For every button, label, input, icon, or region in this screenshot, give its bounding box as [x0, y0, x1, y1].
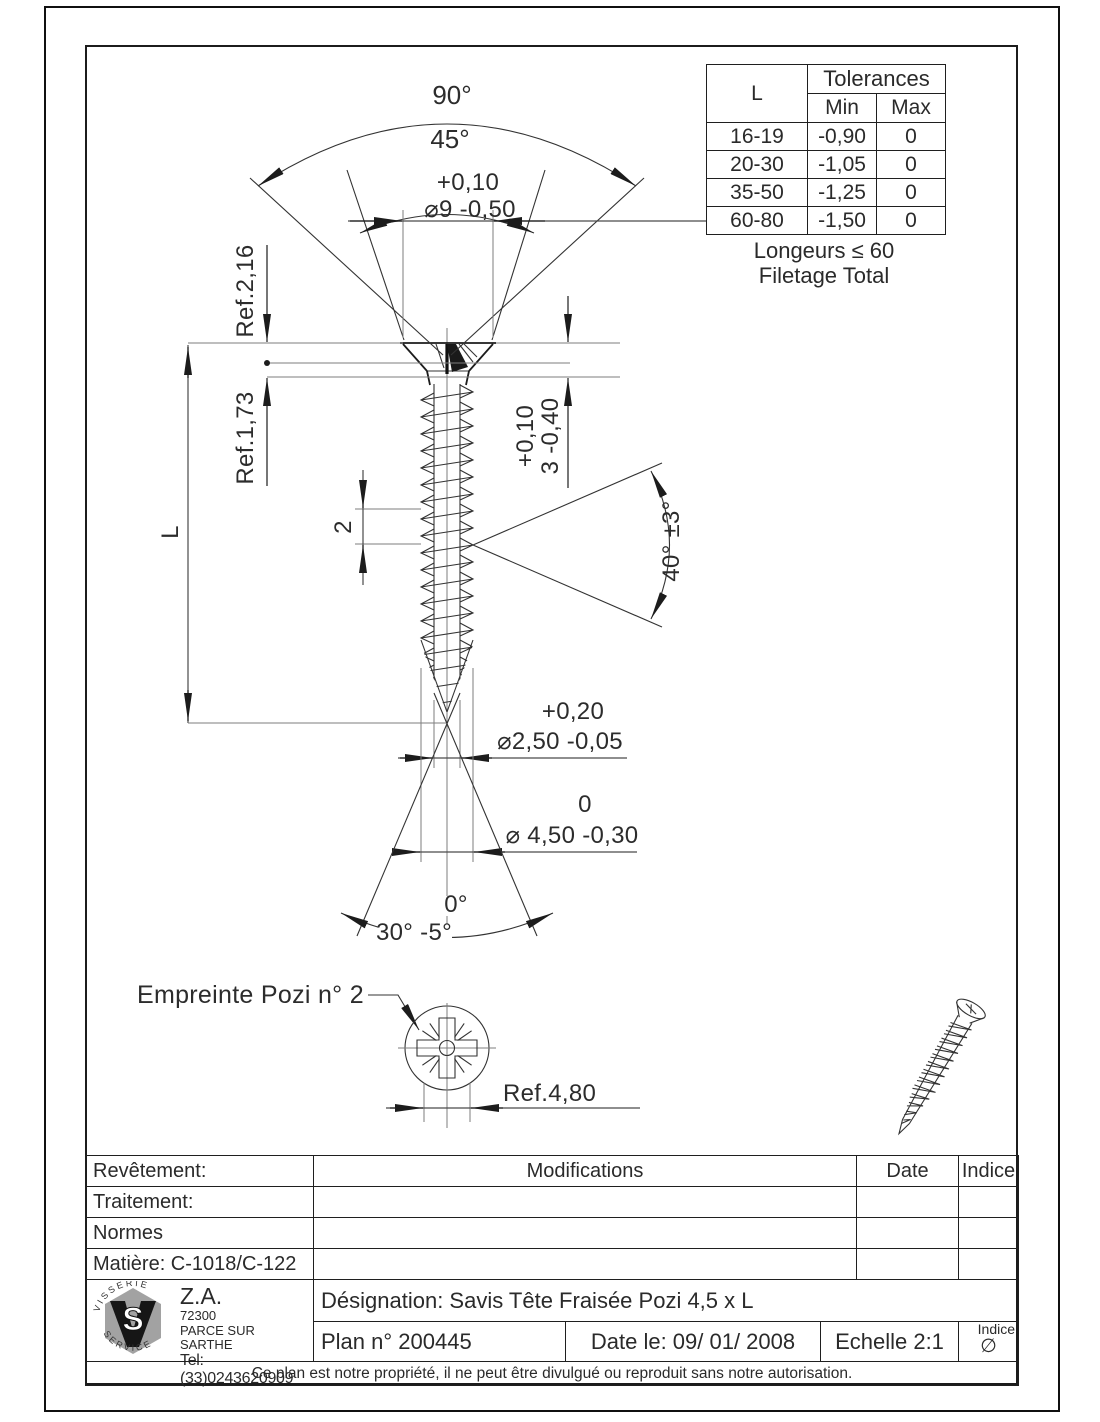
outer-dia-tol-label: 0: [578, 791, 592, 818]
tolerances-table: L Tolerances Min Max 16-19 -0,90 0 20-30…: [706, 64, 946, 235]
date-row-empty: [856, 1217, 959, 1249]
field-normes: Normes: [85, 1217, 314, 1249]
modifications-header: Modifications: [313, 1155, 857, 1187]
thread-angle-label: 40° ±3°: [658, 500, 685, 581]
date-header: Date: [856, 1155, 959, 1187]
recess-dia-label: Ref.4,80: [503, 1080, 596, 1107]
tolerances-note-line2: Filetage Total: [706, 263, 942, 288]
indice-field-label: Indice: [978, 1322, 1018, 1336]
date-field: Date le: 09/ 01/ 2008: [565, 1321, 821, 1362]
pozi-detail: [368, 995, 640, 1128]
indice-row-empty: [958, 1217, 1019, 1249]
indice-header: Indice: [958, 1155, 1019, 1187]
date-row-empty: [856, 1186, 959, 1218]
tol-min-3: -1,50: [808, 207, 877, 235]
ref-head-label: Ref.2,16: [232, 244, 259, 337]
screw-front-view: [400, 343, 496, 714]
ref-neck-label: Ref.1,73: [232, 391, 259, 484]
modifications-row-empty: [313, 1248, 857, 1280]
core-dia-label: ⌀2,50 -0,05: [497, 728, 623, 755]
tol-max-3: 0: [877, 207, 946, 235]
company-logo: S V I S S E R I E S E R V I C E: [92, 1281, 174, 1361]
tol-min-0: -0,90: [808, 123, 877, 151]
head-height-label: 3 -0,40: [537, 398, 564, 475]
field-matiere: Matière: C-1018/C-122: [85, 1248, 314, 1280]
head-height-tol-label: +0,10: [512, 405, 539, 467]
logo-monogram: S: [122, 1301, 143, 1337]
date-row-empty: [856, 1248, 959, 1280]
indice-row-empty: [958, 1248, 1019, 1280]
head-dia-tol-label: +0,10: [437, 169, 499, 196]
modifications-row-empty: [313, 1186, 857, 1218]
angle-45-label: 45°: [430, 124, 469, 154]
tol-min-2: -1,25: [808, 179, 877, 207]
tol-l-0: 16-19: [707, 123, 808, 151]
tip-angle-nominal-label: 0°: [444, 891, 468, 918]
tolerances-note-line1: Longeurs ≤ 60: [706, 238, 942, 263]
dimension-texts: 90° 45° +0,10 ⌀9 -0,50 Ref.2,16 Ref.1,73…: [137, 80, 685, 1107]
tol-min-1: -1,05: [808, 151, 877, 179]
table-row: 60-80 -1,50 0: [707, 207, 946, 235]
company-zip: 72300: [180, 1309, 310, 1323]
tol-max-1: 0: [877, 151, 946, 179]
modifications-row-empty: [313, 1217, 857, 1249]
scale-field: Echelle 2:1: [820, 1321, 959, 1362]
field-revetement: Revêtement:: [85, 1155, 314, 1187]
length-label: L: [157, 525, 184, 539]
tol-l-3: 60-80: [707, 207, 808, 235]
table-row: 35-50 -1,25 0: [707, 179, 946, 207]
angle-90-label: 90°: [432, 80, 471, 110]
tolerances-note: Longeurs ≤ 60 Filetage Total: [706, 238, 942, 289]
plan-number-field: Plan n° 200445: [313, 1321, 566, 1362]
field-traitement: Traitement:: [85, 1186, 314, 1218]
tol-col-l-header: L: [707, 65, 808, 123]
drawing-sheet: 90° 45° +0,10 ⌀9 -0,50 Ref.2,16 Ref.1,73…: [0, 0, 1100, 1422]
tol-min-header: Min: [808, 94, 877, 123]
tol-max-0: 0: [877, 123, 946, 151]
property-notice: Ce plan est notre propriété, il ne peut …: [85, 1361, 1019, 1386]
tol-title: Tolerances: [808, 65, 946, 94]
table-row: 20-30 -1,05 0: [707, 151, 946, 179]
tol-max-2: 0: [877, 179, 946, 207]
tip-angle-label: 30° -5°: [376, 919, 452, 946]
indice-row-empty: [958, 1186, 1019, 1218]
indice-field: Indice ∅: [958, 1321, 1019, 1362]
outer-dia-label: ⌀ 4,50 -0,30: [506, 822, 639, 849]
tol-l-1: 20-30: [707, 151, 808, 179]
company-city: PARCE SUR SARTHE: [180, 1324, 310, 1353]
indice-field-value: ∅: [980, 1337, 997, 1356]
company-za: Z.A.: [180, 1284, 310, 1309]
head-dia-label: ⌀9 -0,50: [424, 196, 516, 223]
pozi-callout-label: Empreinte Pozi n° 2: [137, 981, 364, 1009]
table-row: 16-19 -0,90 0: [707, 123, 946, 151]
designation-field: Désignation: Savis Tête Fraisée Pozi 4,5…: [313, 1279, 1019, 1322]
screw-3d-view: [885, 995, 988, 1141]
core-dia-tol-label: +0,20: [542, 698, 604, 725]
tol-max-header: Max: [877, 94, 946, 123]
pitch-label: 2: [330, 520, 357, 534]
tol-l-2: 35-50: [707, 179, 808, 207]
